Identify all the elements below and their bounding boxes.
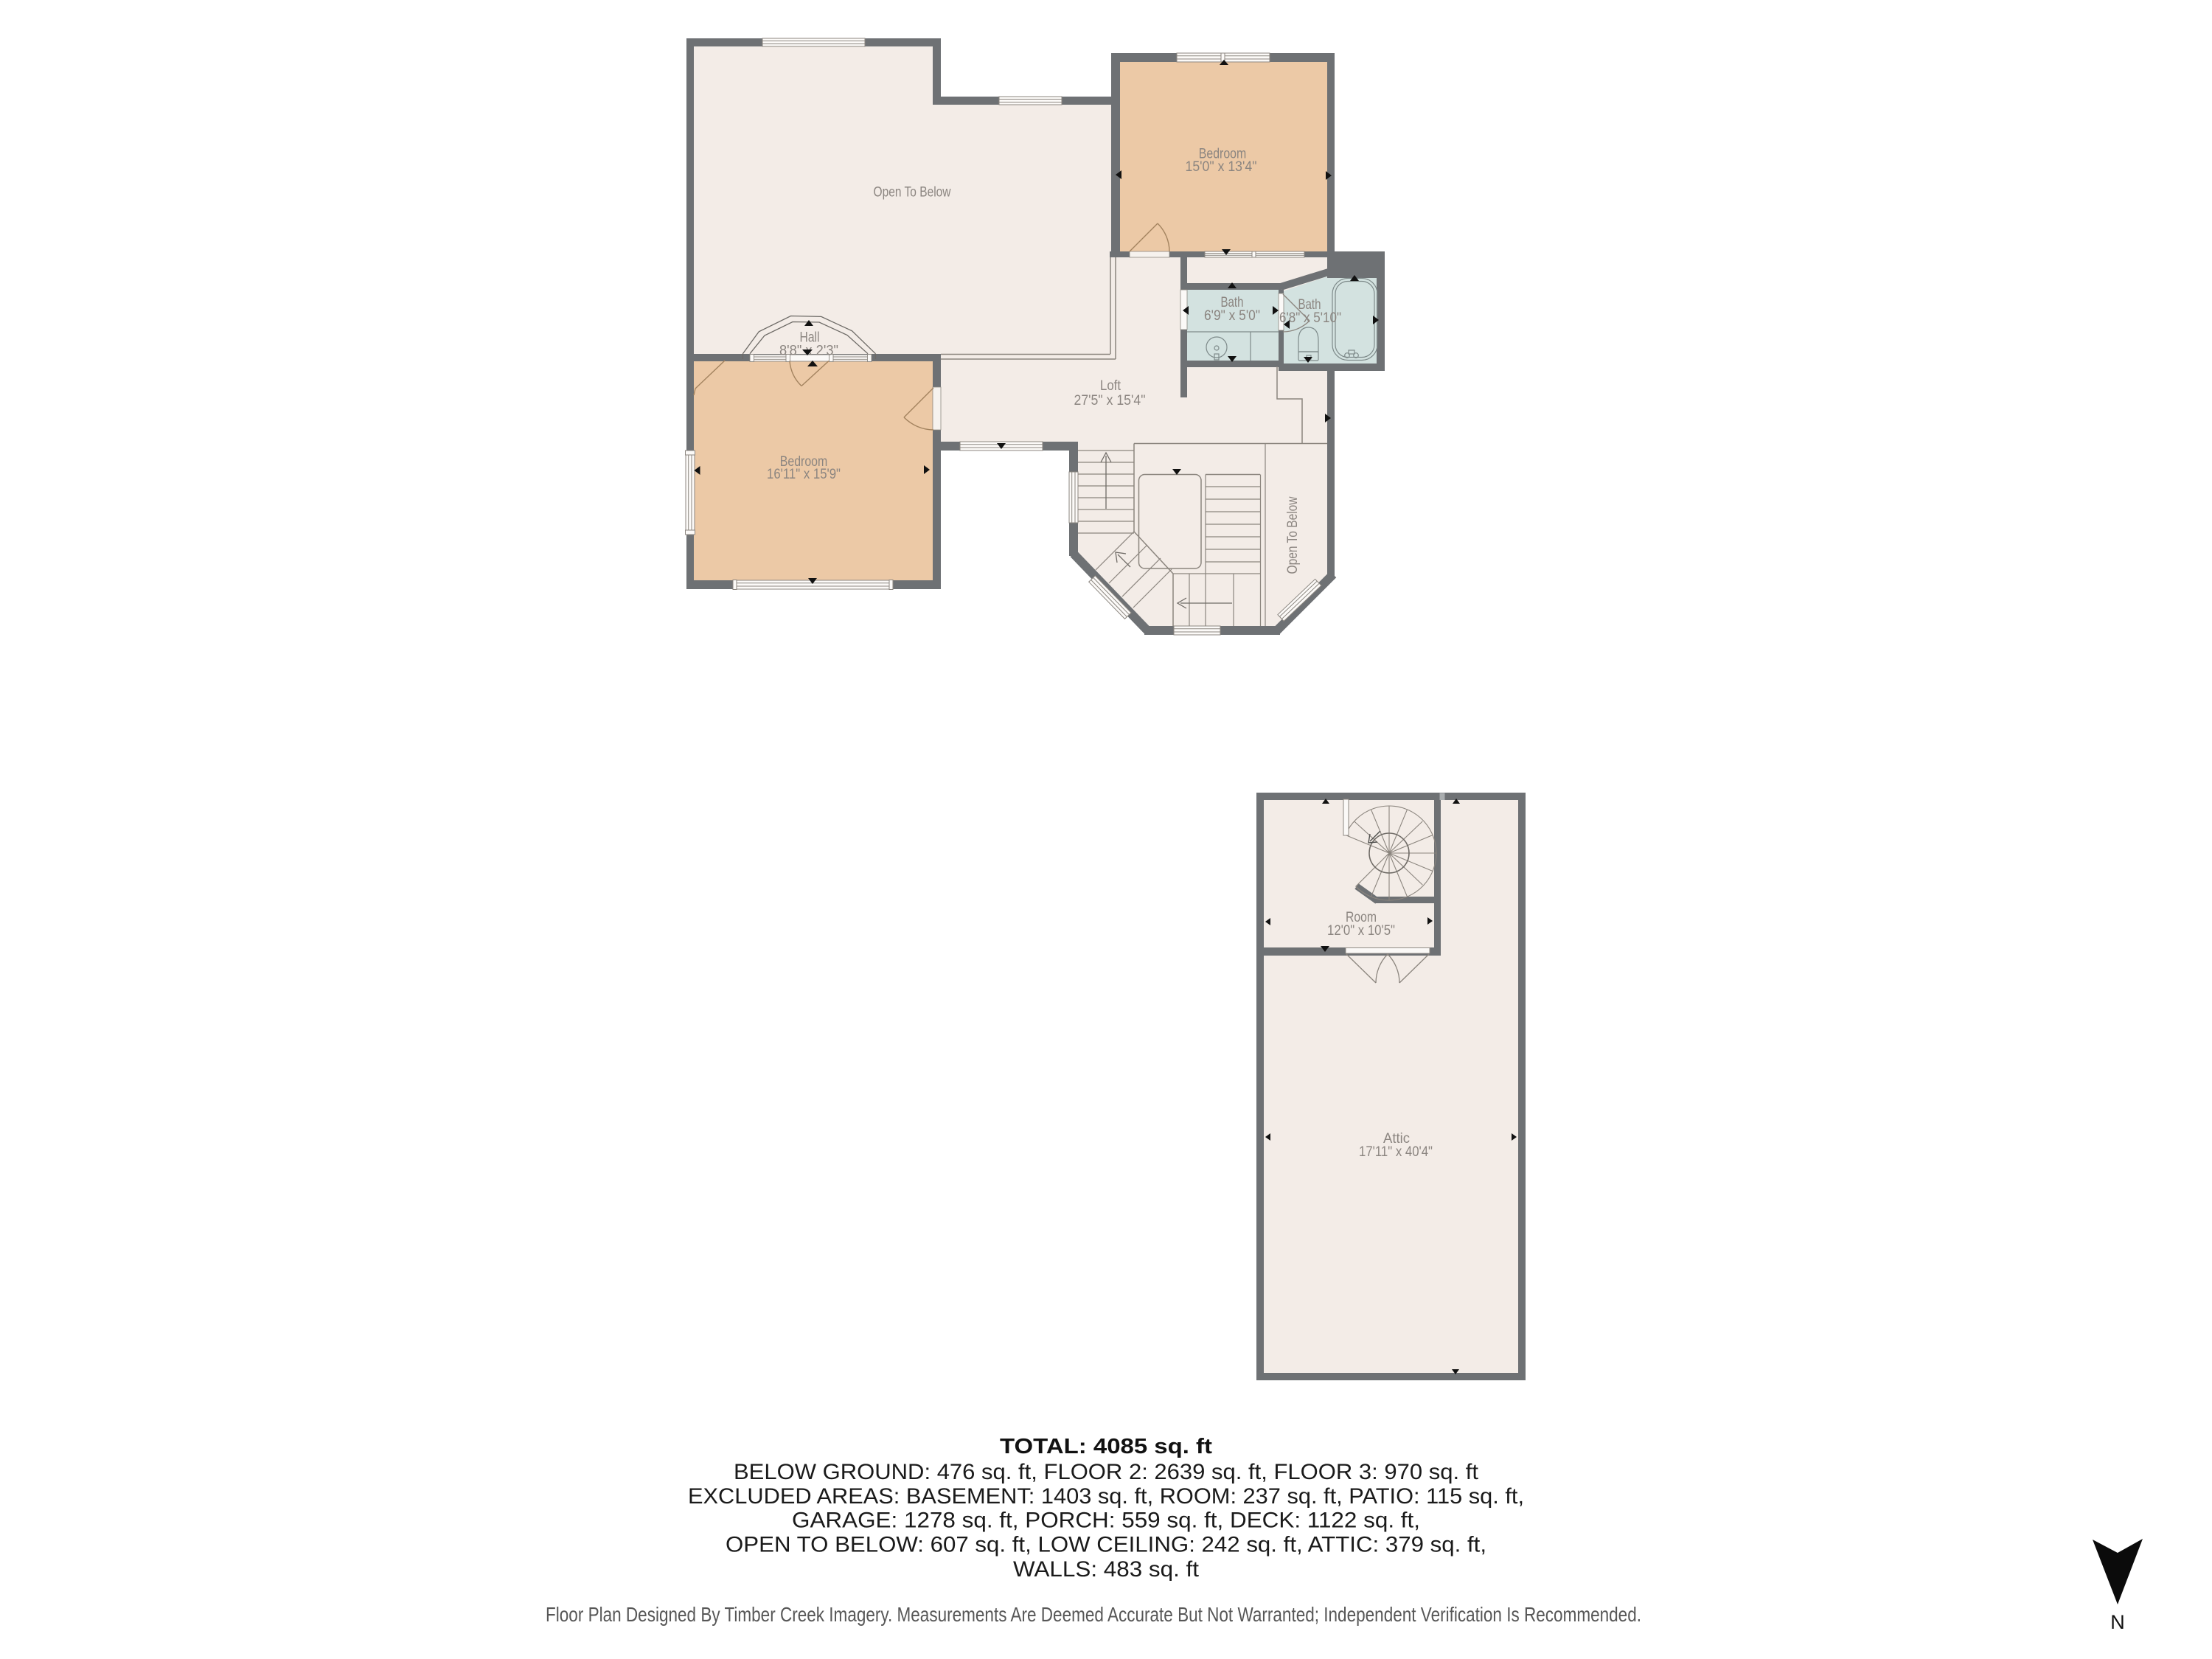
svg-text:EXCLUDED AREAS: BASEMENT: 1403: EXCLUDED AREAS: BASEMENT: 1403 sq. ft, R… — [688, 1484, 1524, 1509]
svg-text:15'0" x 13'4": 15'0" x 13'4" — [1186, 159, 1257, 175]
svg-text:TOTAL: 4085 sq. ft: TOTAL: 4085 sq. ft — [1000, 1435, 1213, 1458]
svg-text:Floor Plan Designed By Timber: Floor Plan Designed By Timber Creek Imag… — [546, 1603, 1641, 1626]
svg-text:Loft: Loft — [1100, 378, 1121, 394]
svg-text:WALLS: 483 sq. ft: WALLS: 483 sq. ft — [1013, 1557, 1200, 1582]
svg-text:Open To Below: Open To Below — [874, 184, 952, 201]
svg-text:Open To Below: Open To Below — [1284, 496, 1301, 574]
svg-text:17'11" x 40'4": 17'11" x 40'4" — [1359, 1144, 1433, 1160]
svg-text:BELOW GROUND: 476 sq. ft, FLOO: BELOW GROUND: 476 sq. ft, FLOOR 2: 2639 … — [734, 1460, 1479, 1484]
svg-text:27'5" x 15'4": 27'5" x 15'4" — [1074, 392, 1146, 408]
svg-text:16'11" x 15'9": 16'11" x 15'9" — [767, 466, 841, 482]
svg-text:OPEN TO BELOW: 607 sq. ft, LOW: OPEN TO BELOW: 607 sq. ft, LOW CEILING: … — [726, 1533, 1486, 1557]
svg-text:6'9" x 5'0": 6'9" x 5'0" — [1204, 307, 1260, 324]
svg-text:12'0" x 10'5": 12'0" x 10'5" — [1327, 922, 1395, 939]
svg-text:GARAGE: 1278 sq. ft, PORCH: 55: GARAGE: 1278 sq. ft, PORCH: 559 sq. ft, … — [792, 1509, 1420, 1533]
svg-text:N: N — [2110, 1611, 2125, 1633]
